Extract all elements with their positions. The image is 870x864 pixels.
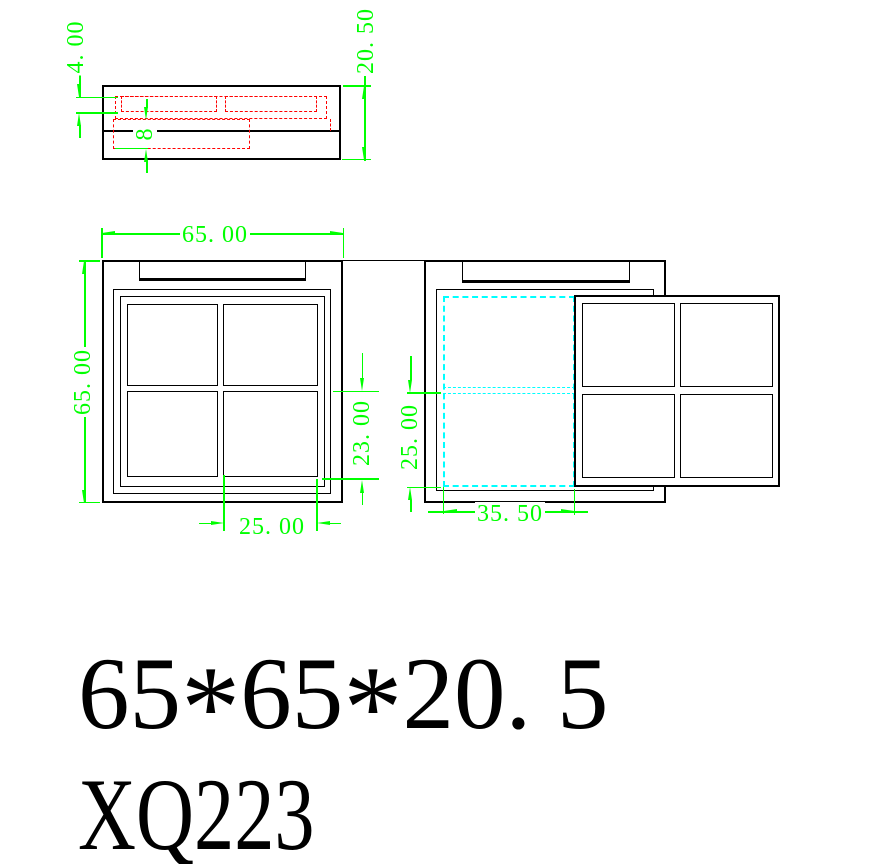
cad-drawing-canvas: 4. 00 8 20. 50 65. 00 xyxy=(0,0,870,864)
model-number-text: XQ223 xyxy=(78,764,315,864)
size-segment: 20. 5 xyxy=(402,637,608,751)
size-segment: 65 xyxy=(78,637,181,751)
product-size-text: 65*65*20. 5 xyxy=(78,629,608,747)
asterisk: * xyxy=(181,641,240,773)
title-block: 65*65*20. 5 XQ223 xyxy=(0,0,870,864)
asterisk: * xyxy=(343,641,402,773)
size-segment: 65 xyxy=(240,637,343,751)
